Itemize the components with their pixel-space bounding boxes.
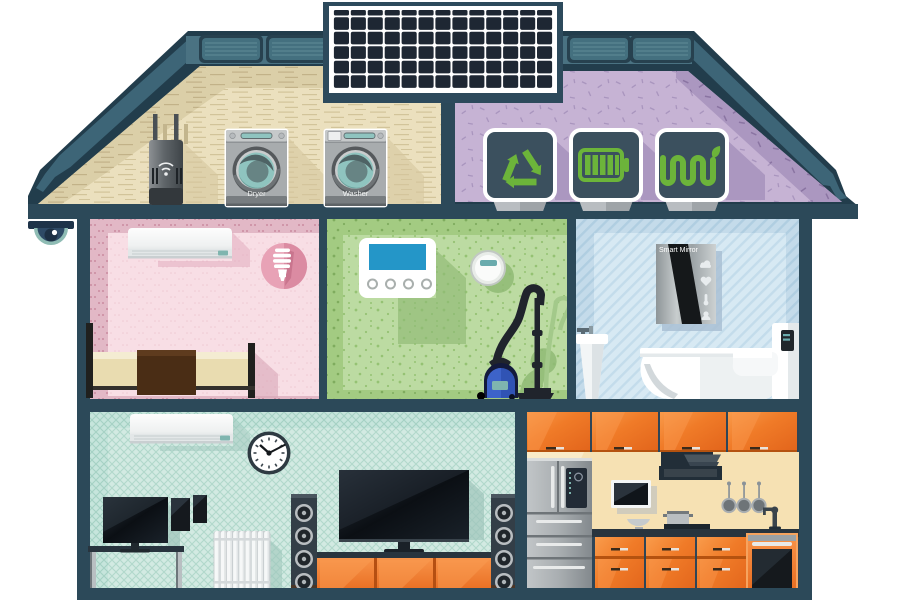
svg-text:Smart Mirror: Smart Mirror: [659, 247, 699, 254]
svg-text:Dryer: Dryer: [247, 189, 266, 198]
svg-text:Washer: Washer: [343, 189, 369, 198]
